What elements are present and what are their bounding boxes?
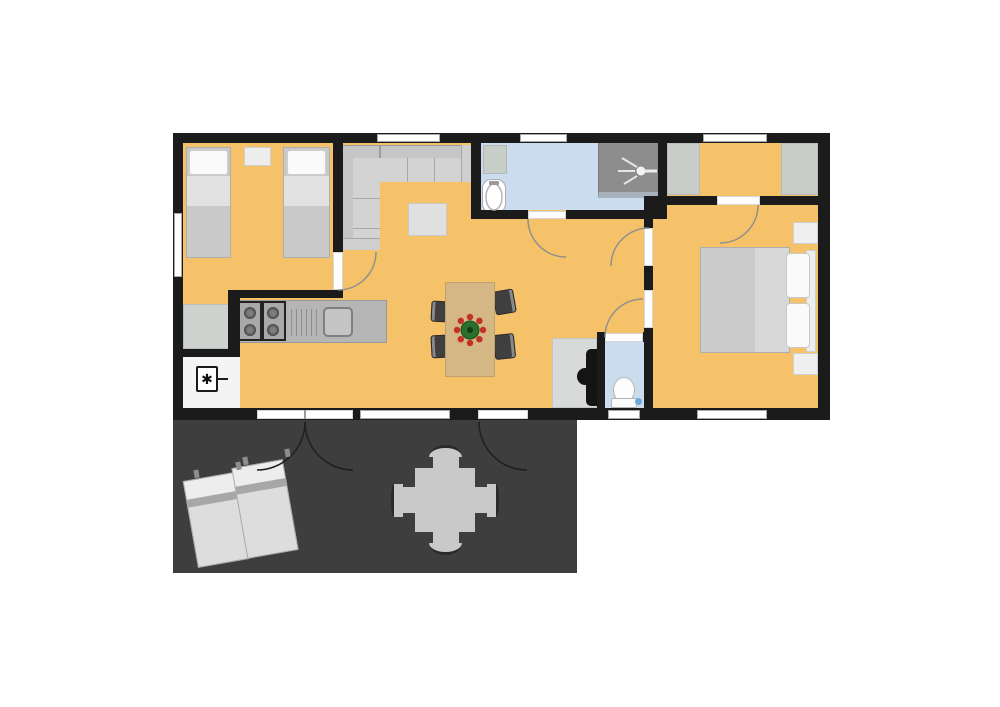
shower-head-icon xyxy=(618,158,657,184)
table-plant-icon xyxy=(454,314,486,346)
door-arc-bedroom2 xyxy=(611,228,649,266)
lounger-handles xyxy=(193,449,290,479)
detail-overlay xyxy=(0,0,1000,707)
floor-plan-canvas: ✱ xyxy=(0,0,1000,707)
door-arc-french-right xyxy=(305,422,353,470)
door-arc-wc xyxy=(605,299,643,337)
door-arc-deck-single xyxy=(479,422,527,470)
bathtub-inner xyxy=(486,181,502,210)
door-arc-french-left xyxy=(257,422,305,470)
door-arc-closet xyxy=(720,205,758,243)
door-arc-bathroom xyxy=(528,219,566,257)
door-arc-bedroom1 xyxy=(338,252,376,290)
